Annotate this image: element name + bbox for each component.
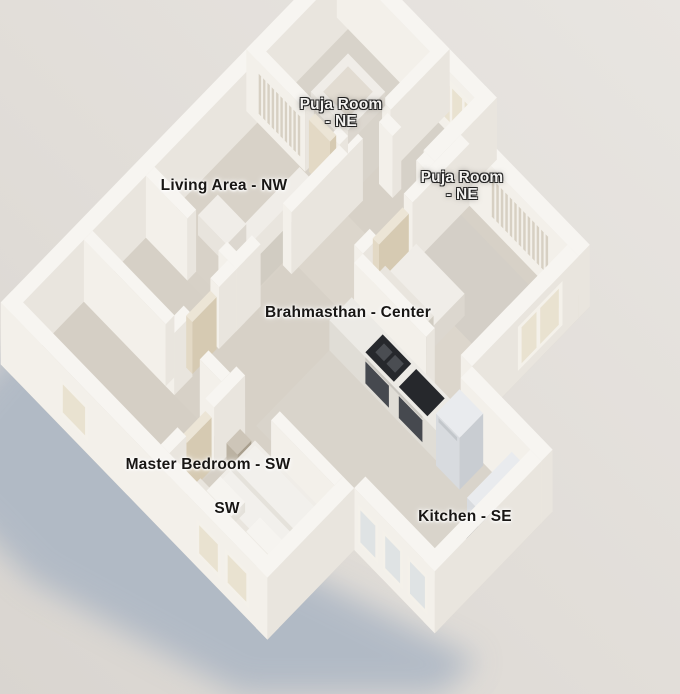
house-model-illustration [0,0,680,694]
floorplan-3d-render: Puja Room - NE Living Area - NW Puja Roo… [0,0,680,694]
